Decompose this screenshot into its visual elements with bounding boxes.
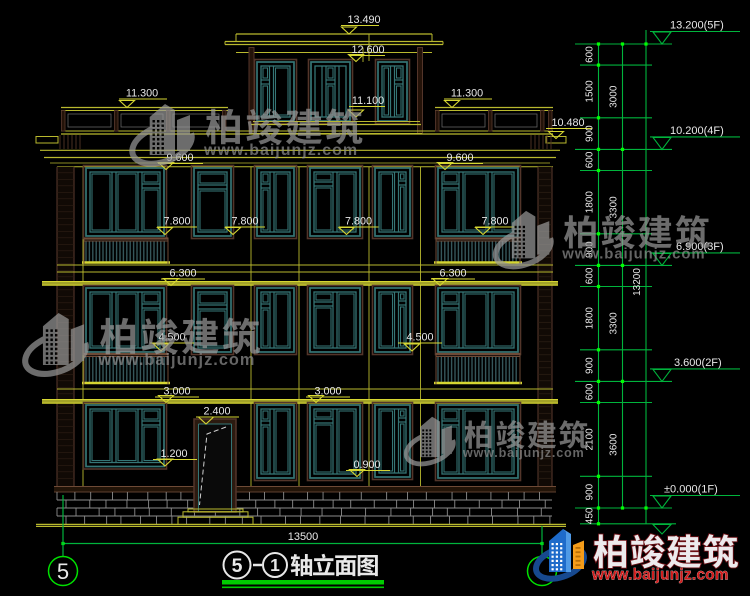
svg-text:3.600(2F): 3.600(2F)	[674, 357, 722, 369]
svg-text:6.300: 6.300	[439, 268, 466, 280]
svg-text:11.100: 11.100	[352, 95, 384, 107]
svg-text:4.500: 4.500	[406, 332, 433, 344]
svg-text:13200: 13200	[632, 268, 643, 296]
svg-text:1800: 1800	[585, 191, 596, 214]
svg-text:7.800: 7.800	[481, 216, 508, 228]
svg-text:600: 600	[585, 46, 596, 63]
svg-text:10.480: 10.480	[551, 117, 584, 129]
svg-text:600: 600	[585, 267, 596, 284]
svg-text:1800: 1800	[585, 307, 596, 330]
svg-text:7.800: 7.800	[231, 216, 258, 228]
svg-text:900: 900	[585, 125, 596, 142]
svg-text:13500: 13500	[288, 531, 319, 543]
svg-text:10.200(4F): 10.200(4F)	[670, 125, 724, 137]
svg-text:3300: 3300	[609, 196, 620, 219]
svg-text:3300: 3300	[609, 312, 620, 335]
svg-text:600: 600	[585, 151, 596, 168]
svg-text:13.490: 13.490	[347, 14, 380, 26]
svg-text:450: 450	[585, 507, 596, 524]
svg-text:7.800: 7.800	[345, 216, 372, 228]
svg-text:5: 5	[57, 559, 69, 584]
svg-text:7.800: 7.800	[163, 216, 190, 228]
svg-text:1500: 1500	[585, 80, 596, 103]
svg-text:900: 900	[585, 357, 596, 374]
svg-text:www.baijunjz.com: www.baijunjz.com	[561, 246, 705, 262]
svg-text:11.300: 11.300	[126, 88, 158, 100]
svg-text:2.400: 2.400	[203, 406, 230, 418]
svg-text:3000: 3000	[609, 85, 620, 108]
svg-text:600: 600	[585, 383, 596, 400]
svg-text:www.baijunjz.com: www.baijunjz.com	[591, 567, 729, 584]
svg-text:www.baijunjz.com: www.baijunjz.com	[203, 142, 358, 159]
svg-text:1: 1	[270, 555, 280, 575]
svg-text:www.baijunjz.com: www.baijunjz.com	[462, 446, 585, 460]
svg-text:5: 5	[232, 555, 243, 577]
svg-text:900: 900	[585, 483, 596, 500]
svg-text:6.300: 6.300	[169, 268, 196, 280]
svg-text:3600: 3600	[609, 433, 620, 456]
svg-text:11.300: 11.300	[451, 88, 483, 100]
svg-text:www.baijunjz.com: www.baijunjz.com	[97, 351, 255, 369]
svg-text:±0.000(1F): ±0.000(1F)	[664, 484, 718, 496]
svg-text:1.200: 1.200	[160, 448, 187, 460]
svg-text:13.200(5F): 13.200(5F)	[670, 20, 724, 32]
